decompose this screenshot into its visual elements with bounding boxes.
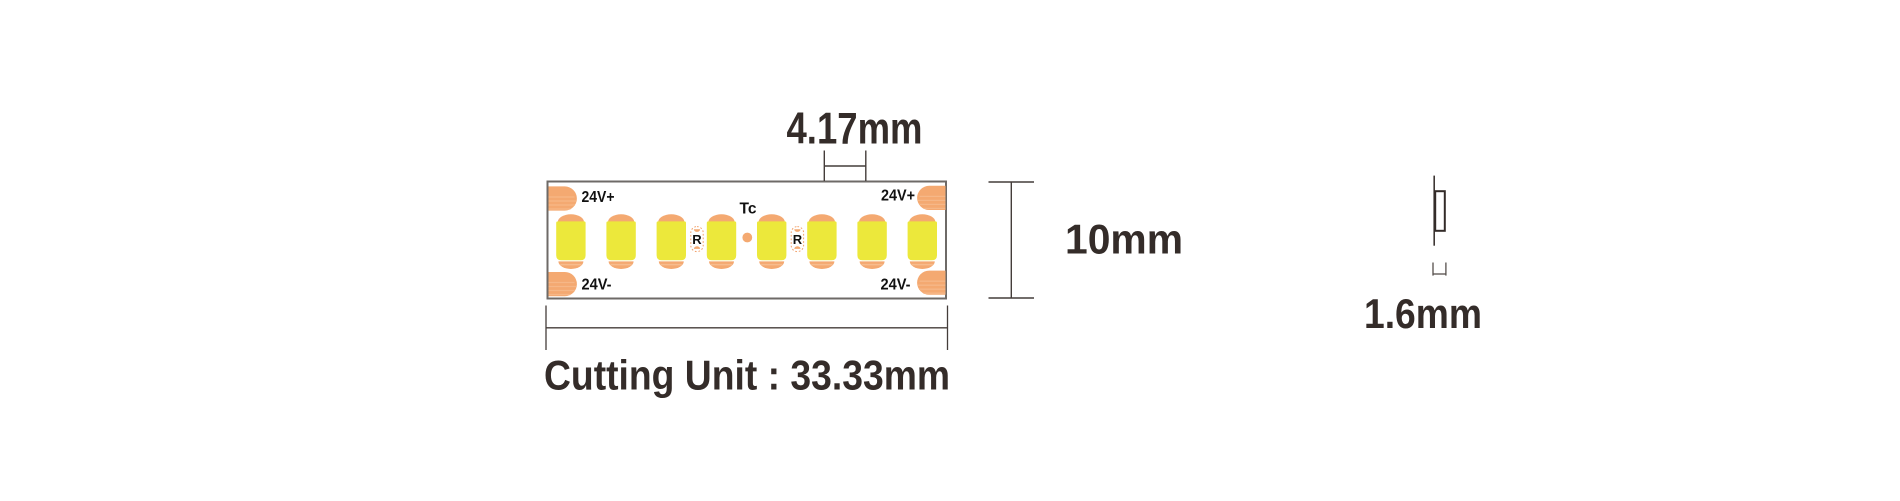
svg-text:R: R: [793, 232, 803, 247]
svg-text:24V+: 24V+: [582, 189, 615, 206]
svg-text:Tc: Tc: [740, 201, 757, 218]
svg-text:Cutting Unit : 33.33mm: Cutting Unit : 33.33mm: [544, 352, 950, 399]
svg-text:24V-: 24V-: [582, 277, 612, 294]
svg-text:24V-: 24V-: [881, 277, 911, 294]
svg-text:1.6mm: 1.6mm: [1364, 290, 1482, 337]
svg-text:10mm: 10mm: [1065, 216, 1183, 263]
svg-text:4.17mm: 4.17mm: [787, 105, 923, 154]
svg-text:24V+: 24V+: [881, 188, 915, 205]
svg-text:R: R: [692, 232, 702, 247]
